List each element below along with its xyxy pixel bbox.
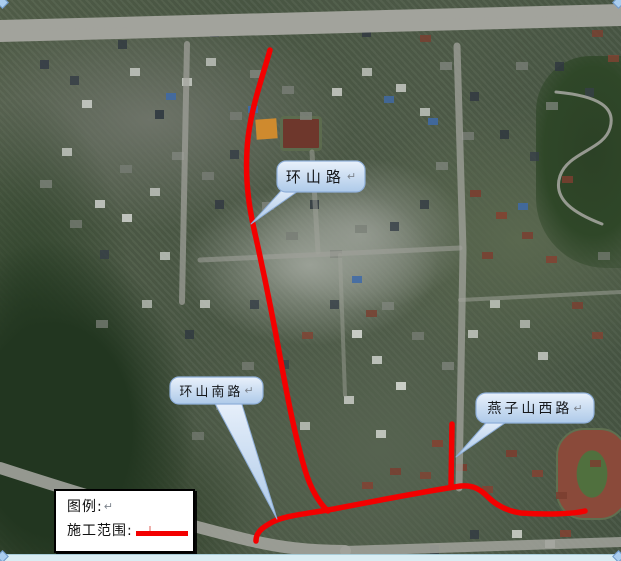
legend-title-row: 图例: ↵	[67, 497, 193, 517]
callout-label-text: 燕子山西路	[487, 398, 572, 418]
swatch-tick-mark	[149, 526, 151, 531]
return-mark-icon: ↵	[104, 497, 113, 517]
callout-tail-huanshan-south-road	[212, 398, 277, 519]
page-background-strip	[0, 554, 621, 561]
swatch-red-line	[136, 531, 188, 536]
map-annotation-overlay	[0, 0, 621, 554]
road-east-cross	[460, 292, 621, 300]
return-mark-icon: ↵	[573, 402, 582, 415]
return-mark-icon: ↵	[244, 384, 253, 397]
document-page: 环山路↵ 环山南路↵ 燕子山西路↵ 图例: ↵ 施工范围:	[0, 0, 621, 561]
callout-label-text: 环山路	[286, 166, 346, 187]
callout-label-yanzishan-west-road: 燕子山西路↵	[476, 393, 594, 423]
road-center-cross	[200, 248, 460, 260]
callout-label-huanshan-road: 环山路↵	[277, 161, 365, 192]
hill-winding-trail	[556, 92, 611, 224]
road-bottom-east	[345, 542, 621, 551]
return-mark-icon: ↵	[347, 170, 356, 183]
road-left-vertical	[182, 44, 187, 302]
callout-label-huanshan-south-road: 环山南路↵	[170, 377, 263, 404]
satellite-map-image[interactable]: 环山路↵ 环山南路↵ 燕子山西路↵ 图例: ↵ 施工范围:	[0, 0, 621, 554]
construction-scope-line-swatch	[136, 525, 190, 537]
road-right-vertical	[457, 46, 463, 488]
construction-route-huanshan-south-road	[256, 486, 585, 541]
legend-box: 图例: ↵ 施工范围:	[54, 489, 195, 553]
road-small-vertical	[340, 255, 345, 395]
legend-title: 图例:	[67, 497, 103, 517]
legend-item-label: 施工范围:	[67, 521, 133, 541]
legend-item-row: 施工范围:	[67, 521, 193, 541]
callout-label-text: 环山南路	[179, 381, 243, 400]
construction-route-yanzishan-west-road	[451, 424, 452, 487]
construction-route-huanshan-road	[247, 50, 328, 511]
